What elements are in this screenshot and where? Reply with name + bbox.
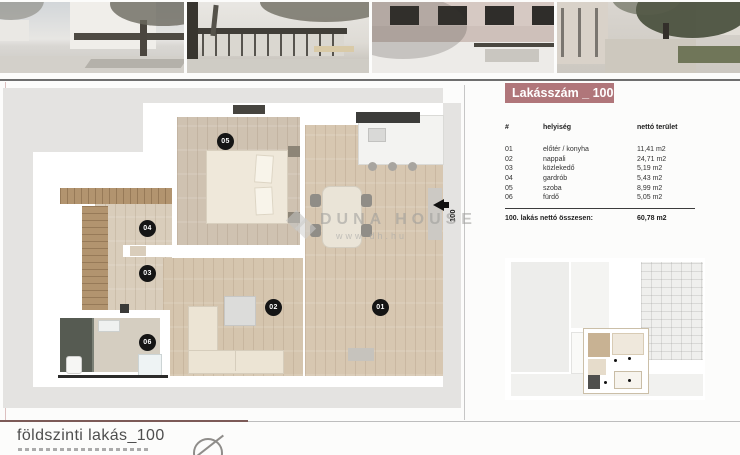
room-marker-06: 06 <box>139 334 156 351</box>
bar-stool <box>388 162 397 171</box>
unit-room-shape <box>612 333 644 355</box>
table-total-row: 100. lakás nettó összesen: 60,78 m2 <box>505 215 701 222</box>
room-marker-04: 04 <box>139 220 156 237</box>
keyplan-building-block <box>511 262 569 372</box>
glass-wall-shape <box>202 34 344 56</box>
door-opening <box>130 246 146 256</box>
slab-bottom <box>33 387 443 408</box>
table-row: 06 fürdő 5,05 m2 <box>505 193 701 203</box>
footer-divider-line-light <box>248 421 740 422</box>
col-header-room: helyiség <box>543 124 637 132</box>
nightstand <box>288 146 300 157</box>
ramp-shape <box>314 46 354 52</box>
keyplan-building-block <box>641 262 703 360</box>
storefront-frame-shape <box>474 43 554 47</box>
storefront-glass-shape <box>485 49 540 62</box>
room-marker-03: 03 <box>139 265 156 282</box>
photo-garden-pavilion-render <box>187 2 369 73</box>
bed <box>206 150 288 224</box>
photo-exterior-street-render <box>0 2 184 73</box>
table-total-divider <box>505 208 695 209</box>
planter-shape <box>678 46 740 63</box>
room-marker-05: 05 <box>217 133 234 150</box>
photo-courtyard-render <box>557 2 740 73</box>
row-area: 8,99 m2 <box>637 184 701 194</box>
slab-left <box>3 152 33 408</box>
room-area-table: # helyiség nettó terület 01 előtér / kon… <box>505 124 701 222</box>
interior-wall <box>123 245 303 257</box>
wardrobe-unit <box>60 188 172 204</box>
slab-top <box>143 88 443 103</box>
tree-foliage-shape <box>260 2 369 22</box>
toilet <box>66 356 82 374</box>
row-room: közlekedő <box>543 164 637 174</box>
wall-detail <box>120 304 129 313</box>
row-area: 5,43 m2 <box>637 174 701 184</box>
footer-fineprint <box>18 448 148 451</box>
pillow <box>254 187 273 216</box>
bar-stool <box>368 162 377 171</box>
tree-trunk-shape <box>187 2 198 62</box>
row-num: 02 <box>505 155 543 165</box>
row-room: előtér / konyha <box>543 145 637 155</box>
shadow-shape <box>85 59 184 68</box>
watermark-url: www.dh.hu <box>336 231 407 241</box>
sofa <box>188 350 284 374</box>
entrance-arrow-icon <box>433 199 444 211</box>
unit-room-shape <box>588 359 606 375</box>
room-marker-02: 02 <box>265 299 282 316</box>
row-num: 04 <box>505 174 543 184</box>
wardrobe-unit <box>82 206 108 312</box>
row-room: szoba <box>543 184 637 194</box>
slab-right <box>443 103 461 408</box>
unit-room-shape <box>588 375 600 389</box>
total-label: 100. lakás nettó összesen: <box>505 215 637 222</box>
sofa-seam <box>235 351 236 371</box>
bathroom-sink <box>98 320 120 332</box>
bathroom-wall-line <box>58 375 168 378</box>
row-num: 01 <box>505 145 543 155</box>
keyplan-highlighted-unit <box>583 328 649 394</box>
header-divider-line <box>0 79 740 81</box>
watermark-brand: DUNA HOUSE <box>320 211 477 229</box>
terrace-slab <box>3 88 143 152</box>
page-title: földszinti lakás_100 <box>17 427 165 445</box>
total-value: 60,78 m2 <box>637 215 701 222</box>
dining-chair <box>361 194 372 207</box>
panel-divider-line <box>464 85 465 420</box>
table-row: 04 gardrób 5,43 m2 <box>505 174 701 184</box>
apartment-number-badge: Lakásszám _ 100 <box>505 83 614 103</box>
floorplan-datasheet: 01 02 03 04 05 06 100 DUNA HOUSE www.dh.… <box>0 0 740 455</box>
footer-divider-line-dark <box>0 420 248 422</box>
photo-brick-facade-render <box>372 2 554 73</box>
table-header-row: # helyiség nettó terület <box>505 124 701 132</box>
canopy-shape <box>74 33 184 39</box>
site-key-plan <box>505 258 705 400</box>
kitchen-sink <box>368 128 386 142</box>
unit-room-shape <box>588 333 610 357</box>
room-marker-01: 01 <box>372 299 389 316</box>
window-shape <box>485 6 514 25</box>
col-header-num: # <box>505 124 543 132</box>
pillow <box>254 154 274 183</box>
washing-machine <box>138 354 162 376</box>
building-shape <box>0 20 29 41</box>
unit-marker-dot <box>628 379 631 382</box>
window-shape <box>532 6 554 25</box>
row-area: 24,71 m2 <box>637 155 701 165</box>
table-row: 05 szoba 8,99 m2 <box>505 184 701 194</box>
balcony-door <box>233 105 265 114</box>
bar-stool <box>408 162 417 171</box>
table-row: 03 közlekedő 5,19 m2 <box>505 164 701 174</box>
row-room: fürdő <box>543 193 637 203</box>
row-room: gardrób <box>543 174 637 184</box>
keyplan-building-block <box>571 262 609 328</box>
unit-marker-dot <box>628 357 631 360</box>
dining-chair <box>310 194 321 207</box>
unit-marker-dot <box>604 381 607 384</box>
tree-foliage-shape <box>0 2 44 20</box>
row-num: 03 <box>505 164 543 174</box>
row-num: 06 <box>505 193 543 203</box>
tree-trunk-shape <box>140 20 147 56</box>
ground-shape <box>187 59 369 73</box>
kitchen-appliances <box>356 112 420 123</box>
row-room: nappali <box>543 155 637 165</box>
row-area: 11,41 m2 <box>637 145 701 155</box>
row-area: 5,05 m2 <box>637 193 701 203</box>
entry-mat <box>348 348 374 361</box>
table-row: 02 nappali 24,71 m2 <box>505 155 701 165</box>
col-header-area: nettó terület <box>637 124 701 132</box>
coffee-table <box>224 296 256 326</box>
unit-marker-dot <box>614 359 617 362</box>
row-num: 05 <box>505 184 543 194</box>
table-row: 01 előtér / konyha 11,41 m2 <box>505 145 701 155</box>
row-area: 5,19 m2 <box>637 164 701 174</box>
facade-slots-shape <box>561 8 605 58</box>
